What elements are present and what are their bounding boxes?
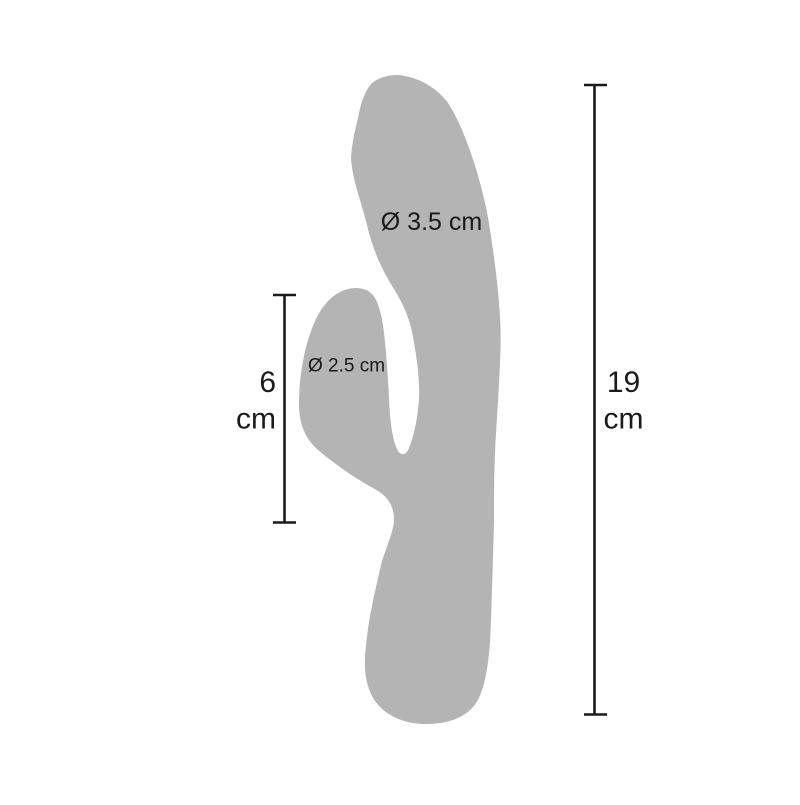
svg-text:6: 6 <box>259 366 276 399</box>
svg-text:cm: cm <box>236 403 276 436</box>
svg-text:cm: cm <box>604 403 644 436</box>
svg-text:19: 19 <box>607 366 640 399</box>
svg-text:Ø 2.5 cm: Ø 2.5 cm <box>308 356 385 377</box>
svg-text:Ø 3.5 cm: Ø 3.5 cm <box>381 208 482 236</box>
